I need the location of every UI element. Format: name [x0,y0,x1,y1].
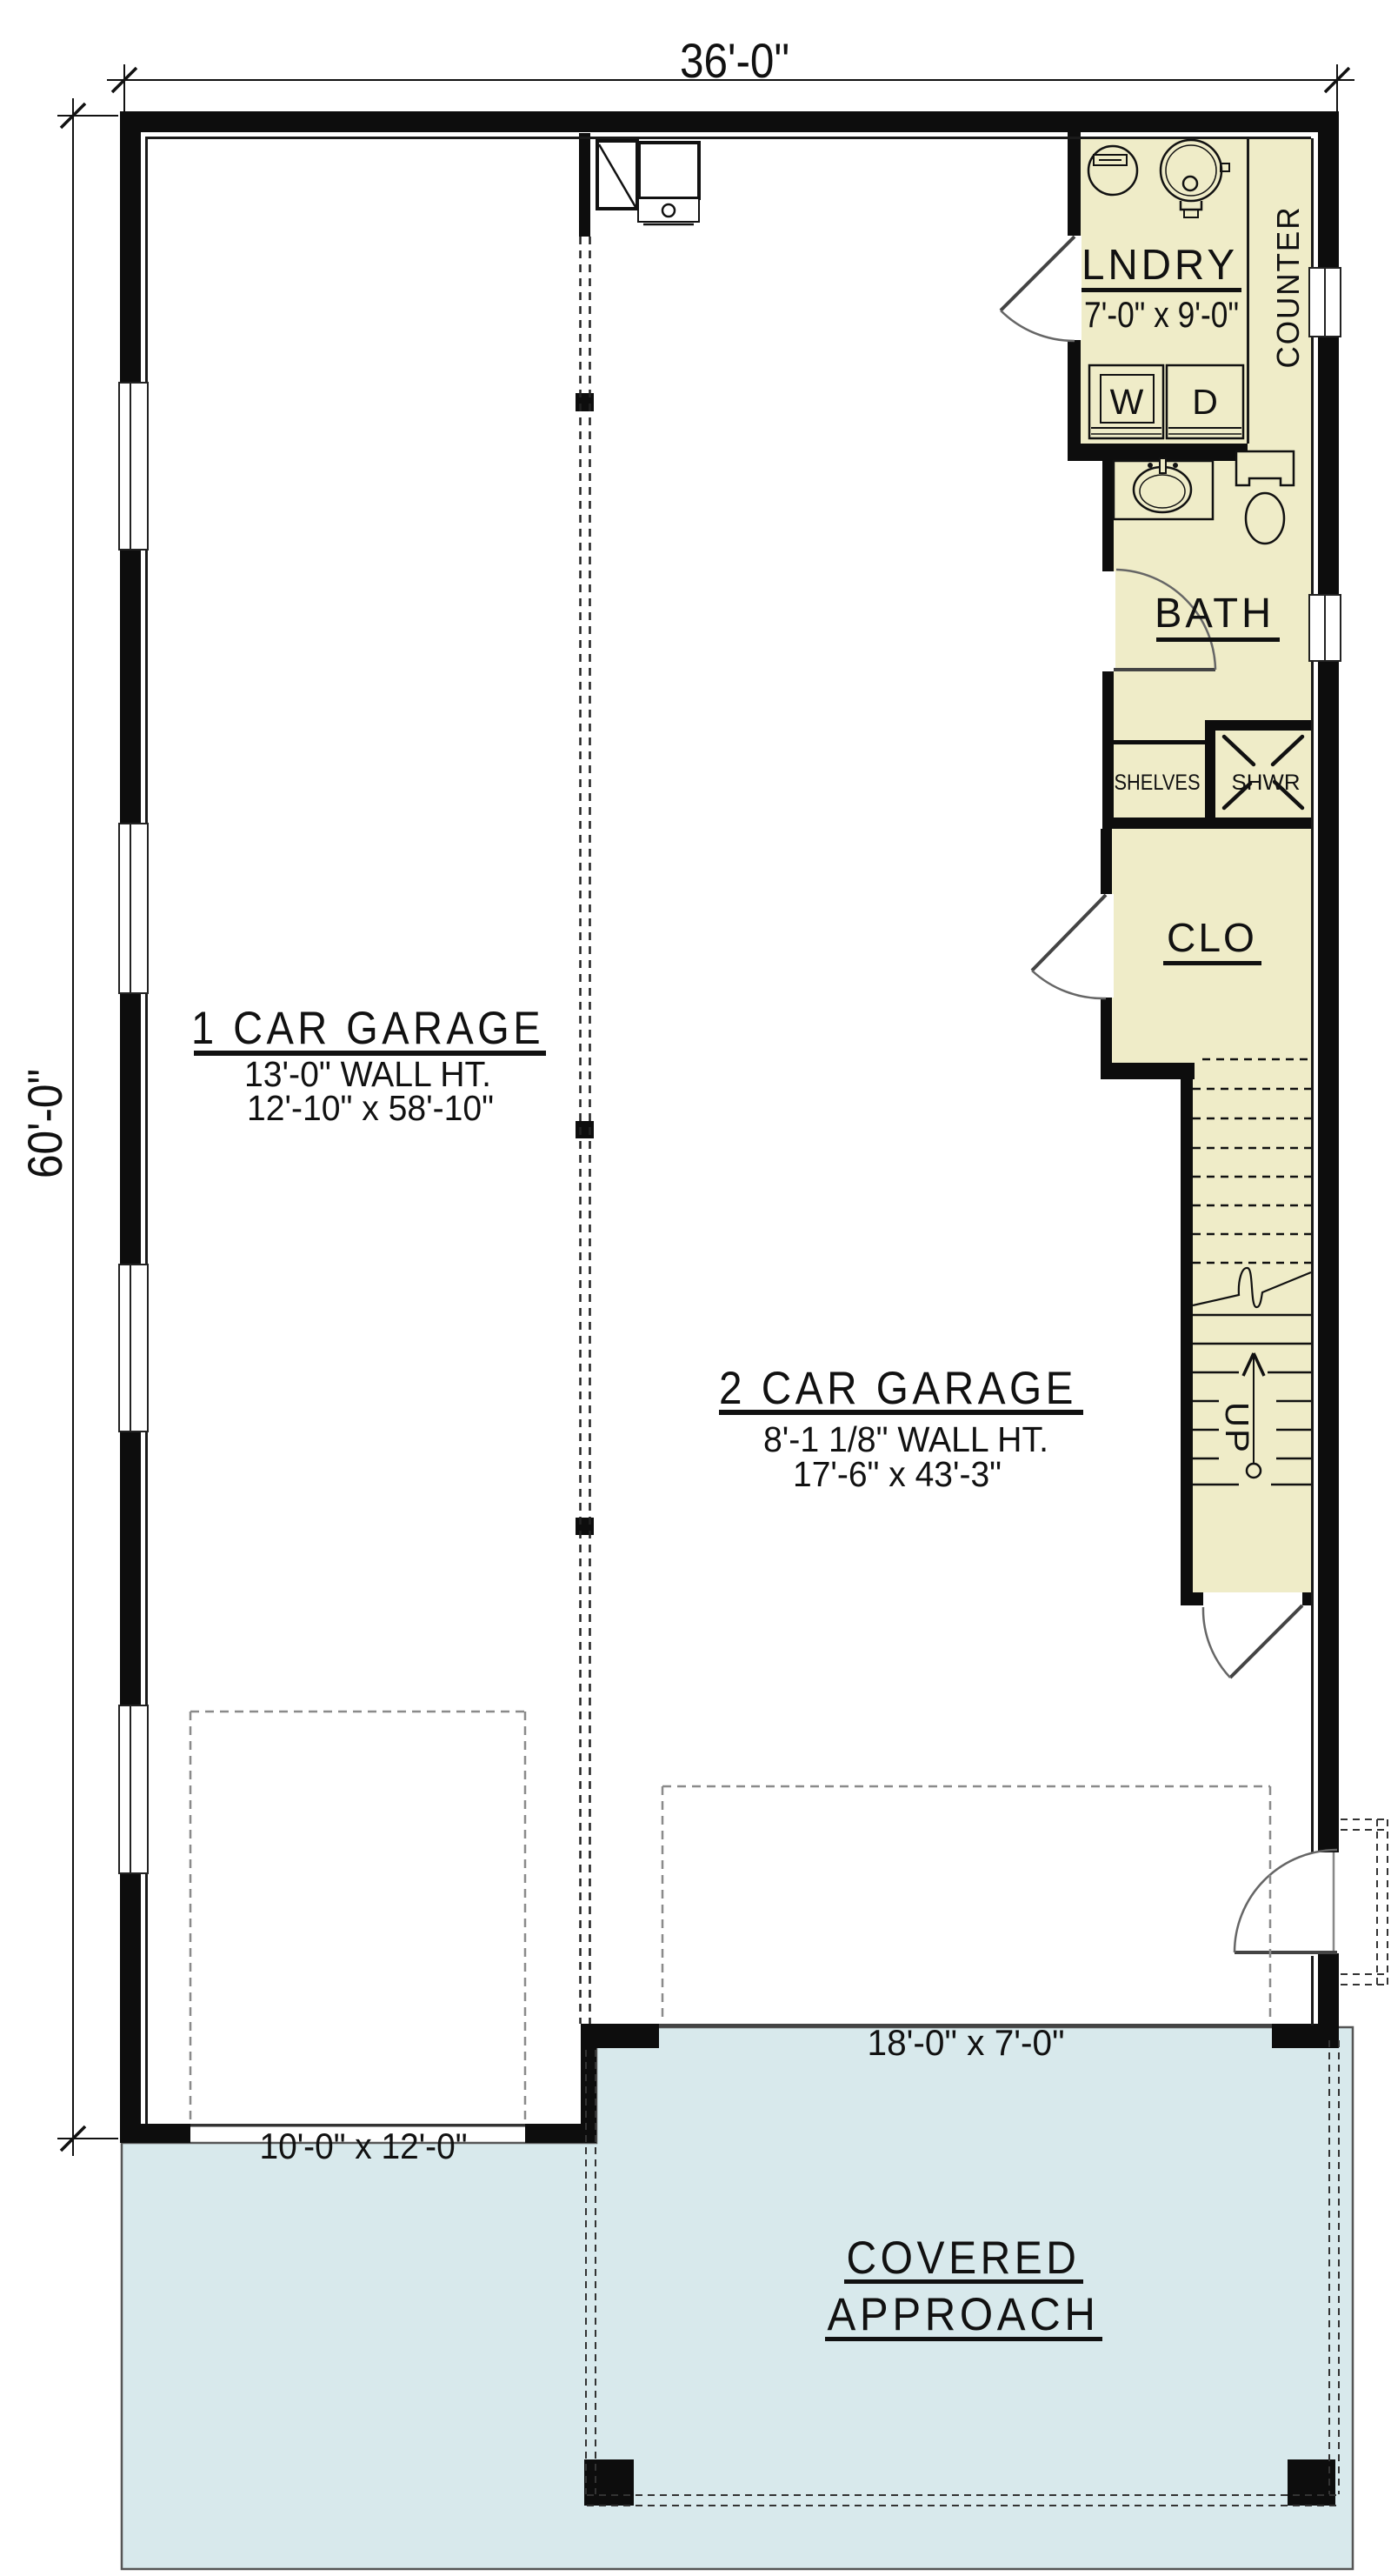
svg-text:17'-6" x 43'-3": 17'-6" x 43'-3" [793,1454,1002,1494]
svg-text:10'-0" x 12'-0": 10'-0" x 12'-0" [260,2126,468,2166]
svg-text:COUNTER: COUNTER [1270,206,1306,369]
svg-text:2 CAR GARAGE: 2 CAR GARAGE [719,1363,1077,1414]
svg-text:LNDRY: LNDRY [1082,242,1238,289]
svg-text:BATH: BATH [1155,591,1275,637]
svg-text:1 CAR GARAGE: 1 CAR GARAGE [191,1003,544,1054]
svg-text:D: D [1192,382,1218,422]
svg-text:60'-0": 60'-0" [17,1069,72,1178]
svg-text:36'-0": 36'-0" [680,33,789,88]
svg-text:SHELVES: SHELVES [1115,771,1201,795]
svg-text:COVERED: COVERED [847,2232,1081,2284]
svg-text:APPROACH: APPROACH [828,2289,1100,2340]
svg-text:18'-0" x 7'-0": 18'-0" x 7'-0" [868,2022,1065,2063]
svg-text:W: W [1110,382,1144,422]
svg-text:7'-0" x 9'-0": 7'-0" x 9'-0" [1084,294,1239,335]
svg-text:12'-10" x 58'-10": 12'-10" x 58'-10" [247,1088,494,1128]
svg-text:SHWR: SHWR [1232,771,1301,795]
svg-text:CLO: CLO [1167,915,1257,960]
svg-text:UP: UP [1218,1402,1255,1454]
